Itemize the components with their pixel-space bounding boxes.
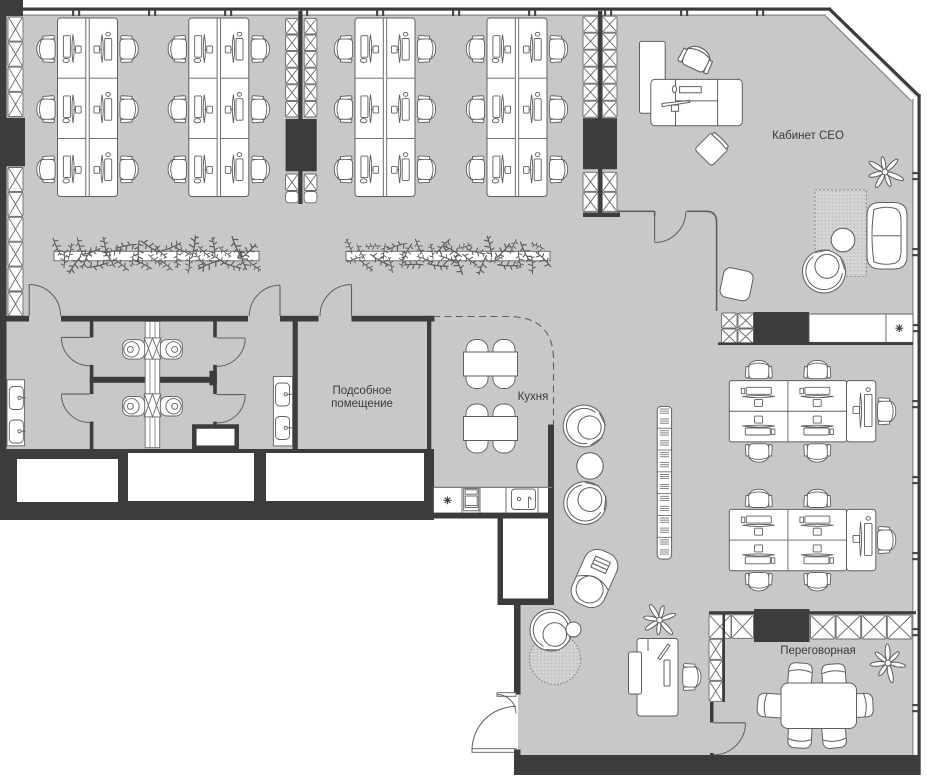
svg-text:Подсобное: Подсобное — [332, 385, 391, 397]
svg-text:Кухня: Кухня — [518, 391, 549, 403]
svg-text:помещение: помещение — [331, 398, 393, 410]
svg-text:Кабинет CEO: Кабинет CEO — [772, 130, 844, 142]
svg-text:Переговорная: Переговорная — [780, 645, 856, 657]
